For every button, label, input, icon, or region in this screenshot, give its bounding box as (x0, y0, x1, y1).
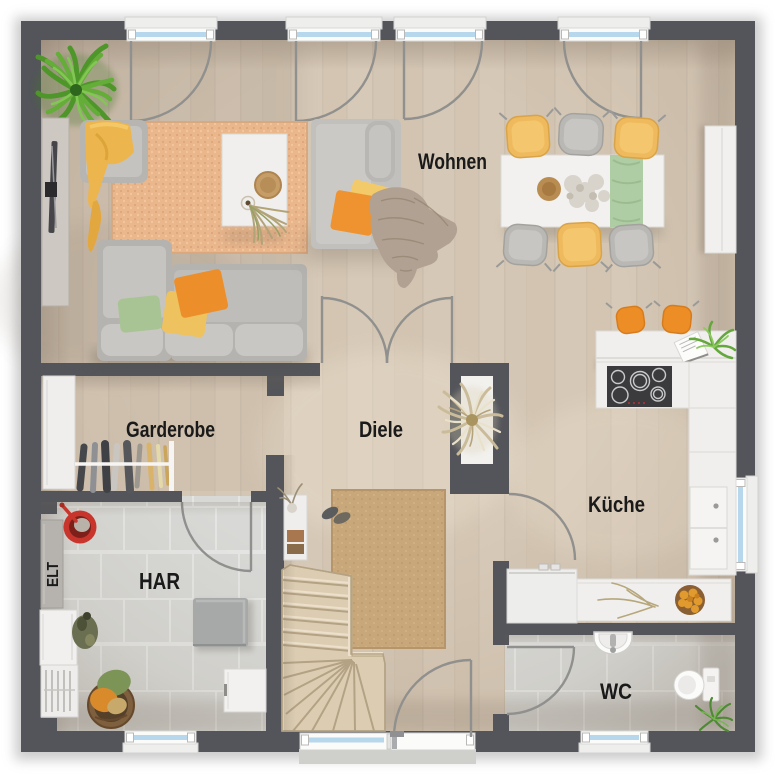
svg-text:HAR: HAR (139, 568, 180, 594)
svg-text:Wohnen: Wohnen (418, 149, 487, 174)
svg-text:Diele: Diele (359, 417, 403, 442)
svg-text:Garderobe: Garderobe (126, 417, 215, 442)
svg-text:WC: WC (600, 679, 632, 704)
svg-text:Küche: Küche (588, 492, 645, 517)
svg-text:ELT: ELT (45, 562, 62, 587)
